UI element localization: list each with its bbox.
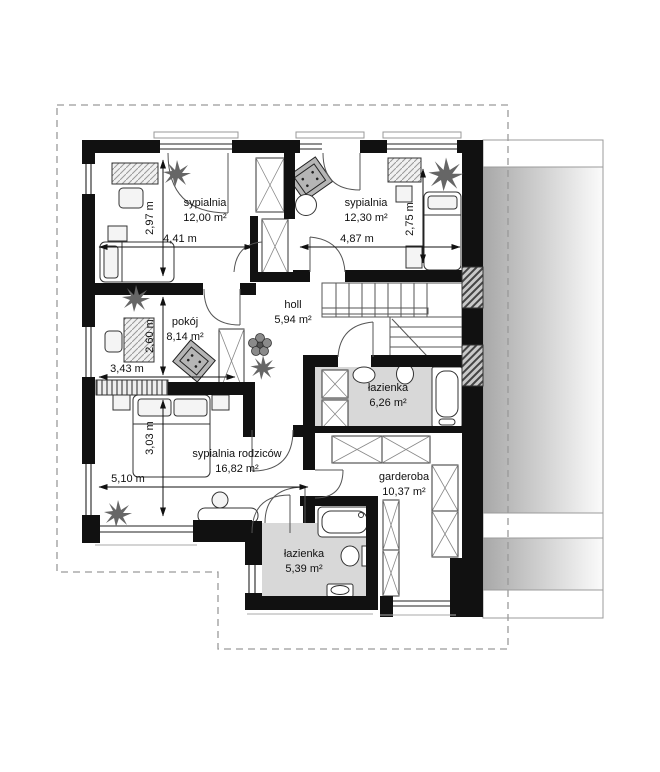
- dim-label: 5,10 m: [111, 473, 145, 485]
- dim-label: 3,03 m: [144, 421, 156, 455]
- room-label-sypialnia-1: sypialnia 12,00 m²: [183, 196, 226, 226]
- dresser-icon: [388, 158, 421, 202]
- room-label-lazienka-1: łazienka 6,26 m²: [368, 381, 408, 411]
- hatched-window: [462, 267, 483, 308]
- room-name: pokój: [166, 315, 203, 330]
- room-label-pokoj: pokój 8,14 m²: [166, 315, 203, 345]
- room-area: 5,39 m²: [284, 562, 324, 577]
- round-table-icon: [296, 195, 317, 216]
- dim-label: 2,60 m: [144, 319, 156, 353]
- room-label-lazienka-2: łazienka 5,39 m²: [284, 547, 324, 577]
- bathtub-icon: [432, 367, 462, 427]
- chair-icon: [198, 492, 258, 523]
- plant-icon: [429, 158, 464, 192]
- room-name: sypialnia: [344, 196, 387, 211]
- dim-label: 4,87 m: [340, 233, 374, 245]
- room-name: holl: [274, 298, 311, 313]
- floor-plan: sypialnia 12,00 m² sypialnia 12,30 m² po…: [0, 0, 660, 772]
- room-label-sypialnia-2: sypialnia 12,30 m²: [344, 196, 387, 226]
- room-area: 16,82 m²: [192, 462, 281, 477]
- room-name: garderoba: [379, 470, 429, 485]
- room-area: 12,30 m²: [344, 211, 387, 226]
- flower-icon: [249, 334, 272, 356]
- room-label-garderoba: garderoba 10,37 m²: [379, 470, 429, 500]
- plant-icon: [250, 355, 275, 379]
- dim-label: 3,43 m: [110, 363, 144, 375]
- bathtub-icon: [318, 507, 371, 537]
- garage-roof-panel: [483, 140, 603, 618]
- stairs: [322, 283, 462, 357]
- room-area: 5,94 m²: [274, 313, 311, 328]
- dim-label: 4,41 m: [163, 233, 197, 245]
- room-area: 10,37 m²: [379, 485, 429, 500]
- dim-label: 2,97 m: [144, 201, 156, 235]
- dim-label: 2,75 m: [404, 202, 416, 236]
- room-name: sypialnia: [183, 196, 226, 211]
- armchair-icon: [173, 340, 216, 382]
- room-area: 8,14 m²: [166, 330, 203, 345]
- floor-plan-drawing: [0, 0, 660, 772]
- sink-icon: [327, 584, 353, 597]
- room-name: sypialnia rodziców: [192, 447, 281, 462]
- room-area: 6,26 m²: [368, 396, 408, 411]
- room-label-holl: holl 5,94 m²: [274, 298, 311, 328]
- plant-icon: [163, 160, 191, 187]
- room-name: łazienka: [368, 381, 408, 396]
- radiator-shelf-icon: [96, 380, 168, 395]
- room-name: łazienka: [284, 547, 324, 562]
- room-area: 12,00 m²: [183, 211, 226, 226]
- hatched-window: [462, 345, 483, 386]
- plant-icon: [104, 500, 132, 527]
- room-label-sypialnia-rodzicow: sypialnia rodziców 16,82 m²: [192, 447, 281, 477]
